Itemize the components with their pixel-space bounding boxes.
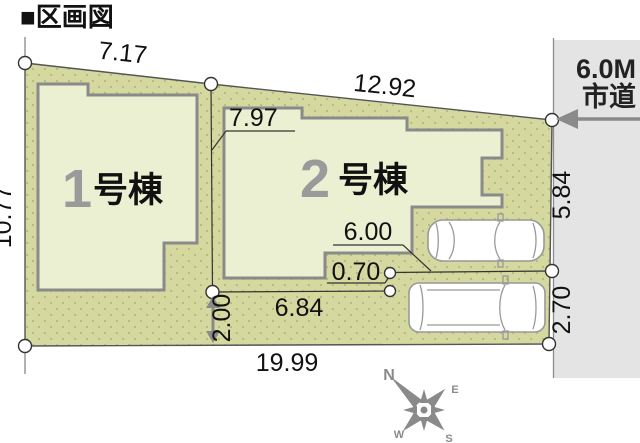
boundary-point-topright xyxy=(546,114,559,127)
boundary-point-rightmid xyxy=(546,265,559,278)
compass-south-label: S xyxy=(445,433,452,443)
dim-left-side: 10.77 xyxy=(0,186,17,249)
page-title: ■区画図 xyxy=(20,2,114,32)
boundary-point-topmid xyxy=(205,78,218,91)
dim-offset: 0.70 xyxy=(332,258,381,286)
dim-setback: 2.00 xyxy=(208,294,236,343)
measure-point-upper xyxy=(385,268,396,279)
dim-top-left: 7.17 xyxy=(97,37,148,70)
car-sedan xyxy=(428,214,544,267)
road-name-label: 市道 xyxy=(582,81,636,112)
compass-north-label: N xyxy=(383,367,395,384)
dim-parking-frontage: 6.84 xyxy=(275,294,324,322)
dim-right-lower: 2.70 xyxy=(548,286,576,335)
dim-top-right: 12.92 xyxy=(352,69,417,103)
boundary-point-bottomright xyxy=(543,338,556,351)
dim-parking-length: 6.00 xyxy=(344,218,393,246)
building-1-suffix: 号棟 xyxy=(93,171,164,210)
dim-bottom: 19.99 xyxy=(256,349,319,377)
plot-diagram: N E W S ■区画図 1 号棟 2 号棟 7.17 12.92 7.97 1… xyxy=(0,0,640,443)
plot-plan-page: N E W S ■区画図 1 号棟 2 号棟 7.17 12.92 7.97 1… xyxy=(0,0,640,443)
compass-west-label: W xyxy=(394,429,405,441)
measure-point-lower xyxy=(385,286,396,297)
car-minivan xyxy=(409,276,545,339)
road-width-label: 6.0M xyxy=(576,54,636,84)
dim-right-upper: 5.84 xyxy=(548,171,576,220)
building-2-number: 2 xyxy=(300,149,330,209)
compass-east-label: E xyxy=(451,384,458,396)
boundary-point-topleft xyxy=(19,57,32,70)
compass-rose: N E W S xyxy=(370,356,467,443)
dim-building2-frontage: 7.97 xyxy=(229,104,278,132)
building-1-number: 1 xyxy=(62,159,92,219)
building-2-suffix: 号棟 xyxy=(338,161,409,200)
boundary-point-bottomleft xyxy=(19,340,32,353)
